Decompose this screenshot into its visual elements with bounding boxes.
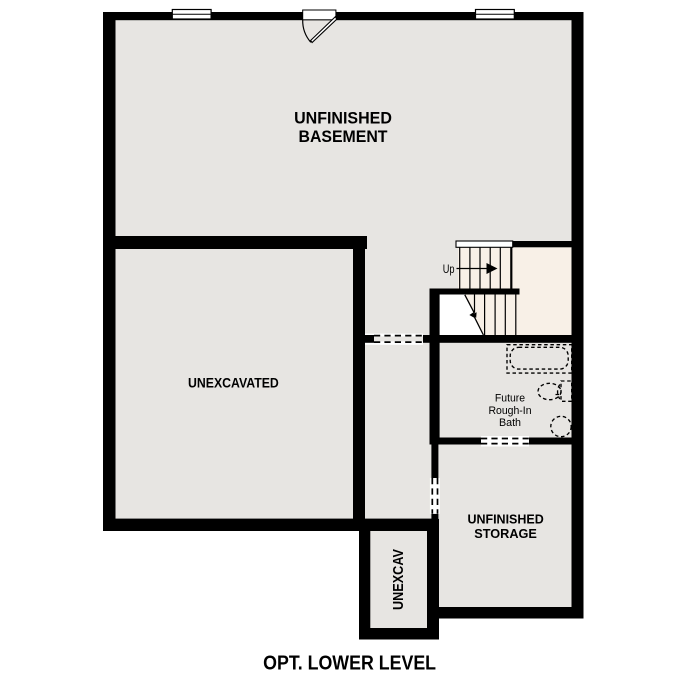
svg-text:OPT. LOWER LEVEL: OPT. LOWER LEVEL: [263, 653, 436, 675]
svg-text:STORAGE: STORAGE: [474, 526, 537, 541]
svg-text:UNEXCAVATED: UNEXCAVATED: [188, 375, 279, 390]
svg-text:Future: Future: [495, 392, 525, 404]
svg-text:Bath: Bath: [499, 417, 521, 429]
svg-text:BASEMENT: BASEMENT: [299, 128, 388, 146]
svg-text:UNFINISHED: UNFINISHED: [467, 511, 543, 526]
svg-text:UNFINISHED: UNFINISHED: [294, 110, 392, 128]
svg-text:Up: Up: [443, 262, 455, 276]
svg-text:UNEXCAV: UNEXCAV: [390, 549, 407, 610]
svg-text:Rough-In: Rough-In: [488, 405, 531, 417]
